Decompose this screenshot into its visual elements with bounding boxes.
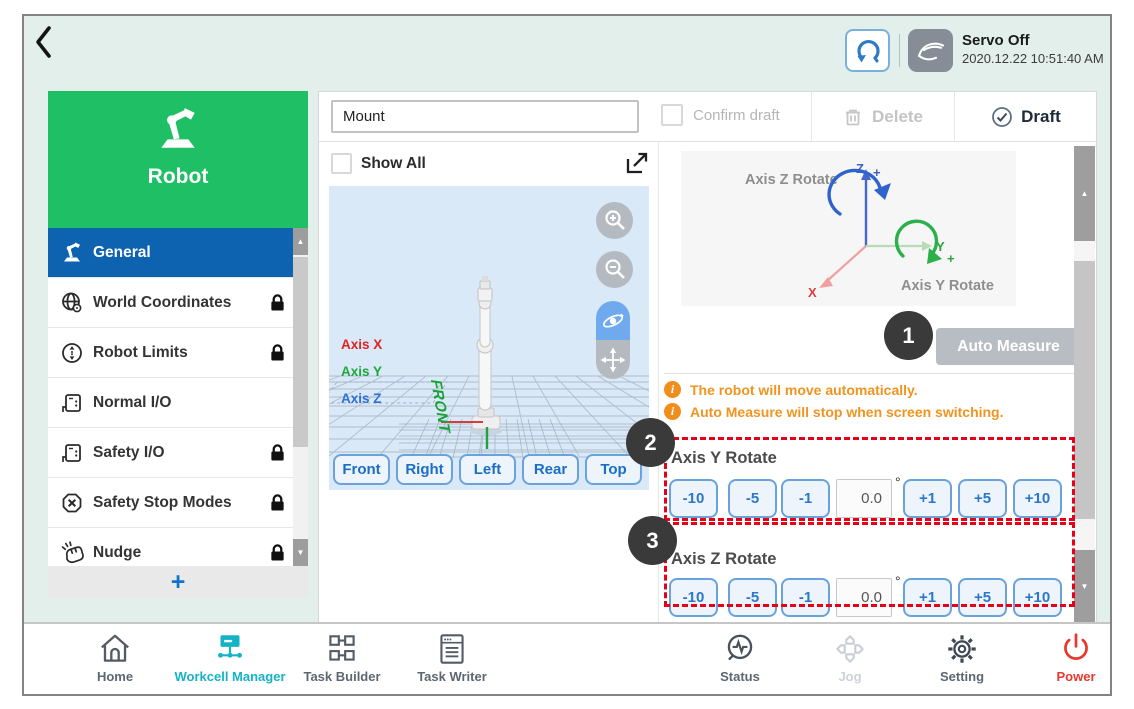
io-connector-icon: [60, 441, 84, 465]
view-front-button[interactable]: Front: [333, 454, 390, 485]
axis-z-minus-5-button[interactable]: -5: [728, 578, 777, 617]
robot-arm-icon: [60, 241, 84, 265]
main-panel: Confirm draft Delete Draft: [318, 91, 1097, 625]
degree-unit: °: [895, 474, 901, 490]
add-workcell-button[interactable]: +: [48, 566, 308, 598]
axis-z-label: Axis Z: [341, 391, 382, 406]
callout-3: 3: [628, 516, 677, 565]
task-writer-icon: [433, 630, 471, 668]
axis-y-plus-5-button[interactable]: +5: [958, 479, 1007, 518]
nudge-hand-icon: [60, 541, 84, 565]
sidebar-item-safety-stop-modes[interactable]: Safety Stop Modes: [48, 478, 308, 528]
note-text: Auto Measure will stop when screen switc…: [690, 404, 1004, 420]
axis-z-rotate-title: Axis Z Rotate: [671, 550, 776, 569]
info-icon: i: [664, 403, 681, 420]
view-buttons-row: Front Right Left Rear Top: [333, 454, 642, 485]
view-rear-button[interactable]: Rear: [522, 454, 579, 485]
lock-icon: [269, 343, 286, 362]
servo-indicator-button[interactable]: [908, 29, 953, 72]
degree-unit: °: [895, 573, 901, 589]
scroll-up-icon[interactable]: ▲: [1074, 146, 1095, 241]
draft-label: Draft: [1021, 107, 1061, 127]
lock-icon: [269, 443, 286, 462]
axis-z-plus-10-button[interactable]: +10: [1013, 578, 1062, 617]
orbit-mode-button[interactable]: [596, 301, 630, 340]
axis-y-angle-input[interactable]: [836, 479, 892, 518]
sidebar-item-label: Normal I/O: [93, 394, 308, 412]
gear-icon: [943, 630, 981, 668]
sidebar-item-label: Safety Stop Modes: [93, 494, 269, 512]
servo-status-text: Servo Off: [962, 31, 1132, 50]
robot-icon: [153, 105, 203, 155]
sidebar-menu: General World Coordinates: [48, 228, 308, 566]
axis-y-plus-1-button[interactable]: +1: [903, 479, 952, 518]
nav-setting[interactable]: Setting: [897, 630, 1027, 684]
bottom-nav: Home Workcell Manager Task: [24, 622, 1110, 694]
nav-workcell-manager[interactable]: Workcell Manager: [165, 630, 295, 684]
show-all-label: Show All: [361, 155, 426, 173]
workcell-name-input[interactable]: [331, 100, 639, 133]
nav-jog[interactable]: Jog: [785, 630, 915, 684]
note-row-2: i Auto Measure will stop when screen swi…: [664, 403, 1004, 420]
scroll-up-icon[interactable]: ▲: [293, 228, 308, 255]
plus-icon: +: [171, 568, 186, 596]
rotation-diagram: Axis Z Rotate Z + Y + Axis Y Rotate X: [681, 151, 1016, 306]
header-divider: [899, 34, 900, 67]
scroll-down-icon[interactable]: ▼: [1074, 550, 1095, 623]
pan-mode-button[interactable]: [596, 340, 630, 379]
axis-z-minus-1-button[interactable]: -1: [781, 578, 830, 617]
sidebar-item-general[interactable]: General: [48, 228, 308, 278]
sidebar-item-world-coordinates[interactable]: World Coordinates: [48, 278, 308, 328]
zoom-out-button[interactable]: [596, 251, 633, 288]
sidebar-item-nudge[interactable]: Nudge: [48, 528, 308, 566]
3d-viewer[interactable]: Axis X Axis Y Axis Z FRONT Front Right: [329, 186, 649, 490]
tool-rotate-icon: [853, 36, 883, 66]
globe-icon: [60, 291, 84, 315]
axis-x-label: Axis X: [341, 337, 382, 352]
robot-model: [470, 276, 502, 436]
sidebar-item-label: Nudge: [93, 544, 269, 562]
delete-label: Delete: [872, 107, 923, 127]
sidebar-item-label: General: [93, 244, 308, 262]
axis-y-rotate-title: Axis Y Rotate: [671, 449, 777, 468]
panel-scrollbar[interactable]: ▲ ▼: [1074, 146, 1095, 623]
view-left-button[interactable]: Left: [459, 454, 516, 485]
axis-z-plus-5-button[interactable]: +5: [958, 578, 1007, 617]
viewer-mode-toggle: [596, 301, 630, 379]
power-icon: [1057, 630, 1095, 668]
stop-x-icon: [60, 491, 84, 515]
orbit-icon: [598, 306, 628, 336]
scrollbar-thumb[interactable]: [1074, 261, 1095, 519]
show-all-checkbox[interactable]: [331, 153, 352, 174]
sidebar: Robot General World C: [48, 91, 308, 598]
back-chevron-icon: [32, 24, 58, 60]
sidebar-item-label: World Coordinates: [93, 294, 269, 312]
z-axis-label: Z: [856, 161, 864, 176]
callout-1: 1: [884, 311, 933, 360]
axis-y-label: Axis Y: [341, 364, 382, 379]
servo-datetime: 2020.12.22 10:51:40 AM: [962, 50, 1132, 67]
expand-icon: [623, 148, 651, 176]
nav-power[interactable]: Power: [1011, 630, 1134, 684]
diagram-y-rotate-label: Axis Y Rotate: [901, 278, 994, 294]
auto-measure-button[interactable]: Auto Measure: [936, 328, 1081, 365]
sidebar-header: Robot: [48, 91, 308, 228]
axis-y-minus-5-button[interactable]: -5: [728, 479, 777, 518]
confirm-draft-label: Confirm draft: [693, 107, 780, 124]
home-icon: [96, 630, 134, 668]
axis-z-angle-input[interactable]: [836, 578, 892, 617]
confirm-draft-checkbox[interactable]: [661, 104, 683, 126]
check-circle-icon: [991, 106, 1013, 128]
trash-icon: [842, 106, 864, 128]
nav-task-writer[interactable]: Task Writer: [387, 630, 517, 684]
x-axis-label: X: [808, 285, 817, 300]
info-icon: i: [664, 381, 681, 398]
svg-text:+: +: [947, 251, 955, 266]
sidebar-scrollbar[interactable]: ▲ ▼: [293, 228, 308, 566]
sidebar-item-safety-io[interactable]: Safety I/O: [48, 428, 308, 478]
servo-hand-icon: [915, 36, 947, 66]
io-connector-icon: [60, 391, 84, 415]
tool-rotate-button[interactable]: [845, 29, 890, 72]
axis-y-plus-10-button[interactable]: +10: [1013, 479, 1062, 518]
note-row-1: i The robot will move automatically.: [664, 381, 918, 398]
task-builder-icon: [323, 630, 361, 668]
app-window: Servo Off 2020.12.22 10:51:40 AM Robot: [22, 14, 1112, 696]
axis-z-plus-1-button[interactable]: +1: [903, 578, 952, 617]
sidebar-item-robot-limits[interactable]: Robot Limits: [48, 328, 308, 378]
diagram-z-rotate-label: Axis Z Rotate: [745, 172, 838, 188]
delete-button[interactable]: Delete: [811, 92, 954, 141]
draft-button[interactable]: Draft: [954, 92, 1098, 141]
axis-y-minus-1-button[interactable]: -1: [781, 479, 830, 518]
expand-viewer-button[interactable]: [623, 148, 651, 176]
back-button[interactable]: [32, 24, 58, 60]
callout-2: 2: [626, 418, 675, 467]
limits-icon: [60, 341, 84, 365]
sidebar-item-label: Safety I/O: [93, 444, 269, 462]
view-right-button[interactable]: Right: [396, 454, 453, 485]
jog-dpad-icon: [831, 630, 869, 668]
z-rotation-arrow: [829, 170, 881, 214]
lock-icon: [269, 493, 286, 512]
zoom-in-button[interactable]: [596, 202, 633, 239]
workcell-manager-icon: [211, 630, 249, 668]
status-waveform-icon: [721, 630, 759, 668]
sidebar-item-normal-io[interactable]: Normal I/O: [48, 378, 308, 428]
nav-home[interactable]: Home: [50, 630, 180, 684]
axis-y-minus-10-button[interactable]: -10: [669, 479, 718, 518]
servo-status-block: Servo Off 2020.12.22 10:51:40 AM: [962, 31, 1132, 67]
scrollbar-thumb[interactable]: [293, 257, 308, 447]
note-text: The robot will move automatically.: [690, 382, 918, 398]
lock-icon: [269, 543, 286, 562]
axis-z-minus-10-button[interactable]: -10: [669, 578, 718, 617]
sidebar-item-label: Robot Limits: [93, 344, 269, 362]
lock-icon: [269, 293, 286, 312]
sidebar-title: Robot: [148, 165, 209, 189]
scroll-down-icon[interactable]: ▼: [293, 539, 308, 566]
